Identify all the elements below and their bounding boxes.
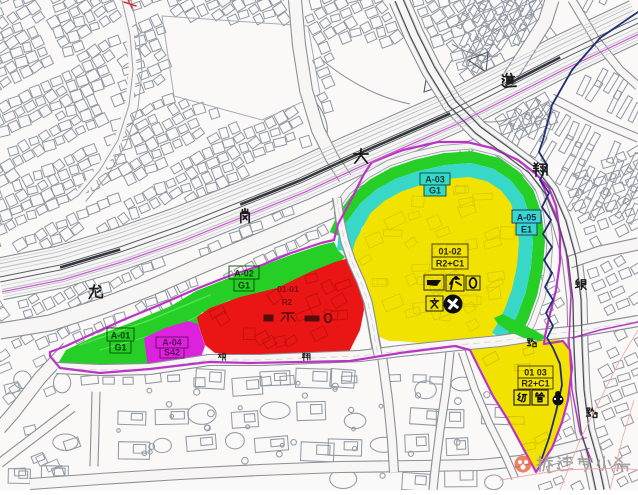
svg-text:A-05: A-05 — [517, 213, 537, 223]
svg-text:S42: S42 — [164, 348, 180, 358]
svg-text:G1: G1 — [429, 186, 441, 196]
svg-text:A-03: A-03 — [425, 175, 445, 185]
svg-text:01 03: 01 03 — [524, 368, 547, 378]
svg-text:G1: G1 — [114, 343, 126, 353]
svg-text:A-04: A-04 — [162, 338, 182, 348]
svg-text:01-02: 01-02 — [438, 247, 461, 257]
svg-text:A-01: A-01 — [111, 331, 131, 341]
svg-text:G1: G1 — [238, 281, 250, 291]
svg-text:01-01: 01-01 — [277, 284, 299, 294]
svg-text:R2+C1: R2+C1 — [436, 259, 464, 269]
svg-text:A-02: A-02 — [234, 269, 254, 279]
svg-text:R2+C1: R2+C1 — [521, 379, 549, 389]
svg-text:R2: R2 — [282, 298, 293, 307]
svg-text:E1: E1 — [521, 225, 532, 235]
